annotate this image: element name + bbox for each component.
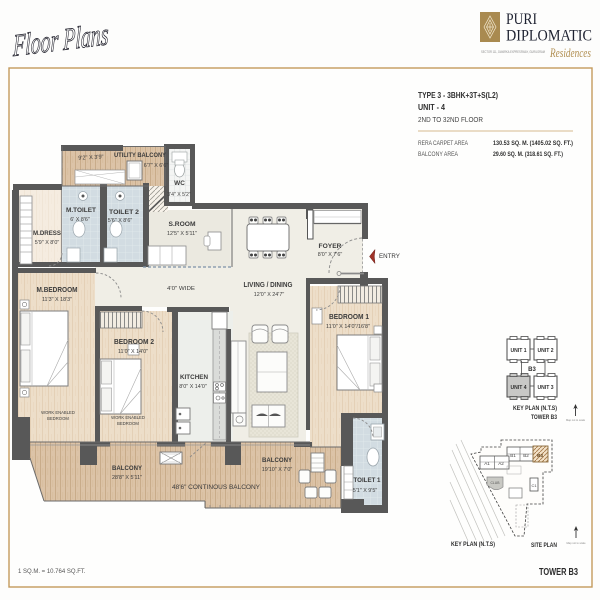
svg-text:2ND TO 32ND FLOOR: 2ND TO 32ND FLOOR bbox=[418, 115, 483, 124]
svg-text:PURI: PURI bbox=[506, 11, 537, 28]
svg-text:SECTOR 111, DWARKA EXPRESSWAY,: SECTOR 111, DWARKA EXPRESSWAY, GURUGRAM bbox=[481, 50, 545, 54]
svg-text:B2: B2 bbox=[523, 453, 529, 458]
svg-text:RERA CARPET AREA: RERA CARPET AREA bbox=[418, 140, 469, 147]
svg-text:4'0" WIDE: 4'0" WIDE bbox=[167, 286, 195, 292]
svg-text:19'10" X 7'0": 19'10" X 7'0" bbox=[262, 467, 293, 473]
svg-text:5'6" X 8'6": 5'6" X 8'6" bbox=[108, 218, 133, 224]
svg-text:12'0" X 24'7": 12'0" X 24'7" bbox=[254, 292, 285, 298]
svg-text:130.53 SQ. M. (1405.02 SQ. FT.: 130.53 SQ. M. (1405.02 SQ. FT.) bbox=[493, 140, 573, 147]
svg-text:UNIT 3: UNIT 3 bbox=[538, 385, 554, 391]
svg-text:UNIT 4: UNIT 4 bbox=[511, 385, 528, 391]
svg-text:BEDROOM: BEDROOM bbox=[47, 416, 69, 421]
svg-text:5'9" X 8'0": 5'9" X 8'0" bbox=[35, 240, 60, 246]
svg-text:12'5" X 5'11": 12'5" X 5'11" bbox=[167, 231, 197, 237]
svg-text:M.DRESS: M.DRESS bbox=[33, 230, 62, 237]
svg-text:11'3" X 18'3": 11'3" X 18'3" bbox=[42, 297, 72, 303]
svg-text:KEY PLAN (N.T.S): KEY PLAN (N.T.S) bbox=[513, 405, 557, 412]
svg-text:11'0" X 14'0"/16'8": 11'0" X 14'0"/16'8" bbox=[326, 324, 370, 330]
svg-text:6'7" X 6'6": 6'7" X 6'6" bbox=[144, 163, 169, 169]
svg-text:DIPLOMATIC: DIPLOMATIC bbox=[506, 28, 592, 45]
svg-text:UNIT 2: UNIT 2 bbox=[538, 348, 554, 354]
svg-text:WORK ENABLED: WORK ENABLED bbox=[41, 410, 75, 415]
svg-text:Map not to scale: Map not to scale bbox=[566, 541, 586, 545]
svg-text:BALCONY: BALCONY bbox=[262, 457, 292, 464]
svg-text:B3: B3 bbox=[528, 367, 536, 373]
svg-text:SITE PLAN: SITE PLAN bbox=[531, 542, 557, 549]
svg-text:BEDROOM 2: BEDROOM 2 bbox=[114, 339, 154, 346]
svg-text:S.ROOM: S.ROOM bbox=[169, 221, 197, 228]
svg-text:BEDROOM 1: BEDROOM 1 bbox=[329, 314, 369, 321]
svg-text:CLUB: CLUB bbox=[490, 481, 500, 485]
svg-text:WC: WC bbox=[174, 180, 185, 187]
svg-text:UNIT 1: UNIT 1 bbox=[511, 348, 527, 354]
svg-text:TOWER B3: TOWER B3 bbox=[539, 566, 578, 578]
svg-text:B3: B3 bbox=[537, 453, 543, 458]
svg-text:28'8" X 5'11": 28'8" X 5'11" bbox=[112, 475, 142, 481]
svg-text:BEDROOM: BEDROOM bbox=[117, 421, 139, 426]
svg-text:TOILET 2: TOILET 2 bbox=[109, 209, 139, 216]
svg-text:29.60 SQ. M. (318.61 SQ. FT.): 29.60 SQ. M. (318.61 SQ. FT.) bbox=[493, 151, 563, 158]
svg-text:48'6" CONTINOUS BALCONY: 48'6" CONTINOUS BALCONY bbox=[172, 485, 260, 491]
svg-text:LIVING / DINING: LIVING / DINING bbox=[244, 280, 293, 289]
svg-text:8'0" X 7'6": 8'0" X 7'6" bbox=[318, 252, 343, 258]
svg-text:M.BEDROOM: M.BEDROOM bbox=[37, 287, 78, 294]
svg-text:TOWER B3: TOWER B3 bbox=[531, 414, 557, 421]
svg-text:5'1" X 9'5": 5'1" X 9'5" bbox=[353, 488, 378, 494]
svg-text:ENTRY: ENTRY bbox=[379, 253, 400, 260]
svg-text:UTILITY BALCONY: UTILITY BALCONY bbox=[114, 152, 167, 159]
svg-text:6' X 8'6": 6' X 8'6" bbox=[70, 217, 90, 223]
svg-text:3'4" X 5'2": 3'4" X 5'2" bbox=[167, 192, 191, 198]
svg-text:M.TOILET: M.TOILET bbox=[66, 207, 96, 214]
svg-text:TOILET 1: TOILET 1 bbox=[354, 477, 381, 484]
svg-text:UNIT - 4: UNIT - 4 bbox=[418, 103, 445, 112]
svg-text:BALCONY: BALCONY bbox=[112, 465, 142, 472]
svg-text:Residences: Residences bbox=[549, 45, 591, 60]
svg-text:11'0" X 14'0": 11'0" X 14'0" bbox=[118, 349, 148, 355]
svg-text:TYPE 3 - 3BHK+3T+S(L2): TYPE 3 - 3BHK+3T+S(L2) bbox=[418, 91, 498, 100]
svg-text:WORK ENABLED: WORK ENABLED bbox=[111, 415, 145, 420]
svg-text:KITCHEN: KITCHEN bbox=[180, 374, 208, 381]
svg-text:A2: A2 bbox=[498, 461, 504, 466]
svg-text:1 SQ.M. = 10.764 SQ.FT.: 1 SQ.M. = 10.764 SQ.FT. bbox=[18, 569, 86, 575]
svg-text:A1: A1 bbox=[484, 461, 490, 466]
svg-text:B1: B1 bbox=[510, 453, 516, 458]
svg-text:Map not to scale: Map not to scale bbox=[566, 418, 586, 422]
svg-text:8'0" X 14'0": 8'0" X 14'0" bbox=[179, 384, 207, 390]
svg-text:KEY PLAN (N.T.S): KEY PLAN (N.T.S) bbox=[451, 541, 495, 548]
svg-text:FOYER: FOYER bbox=[319, 243, 342, 250]
svg-text:BALCONY AREA: BALCONY AREA bbox=[418, 151, 459, 158]
svg-text:C1: C1 bbox=[531, 483, 537, 488]
